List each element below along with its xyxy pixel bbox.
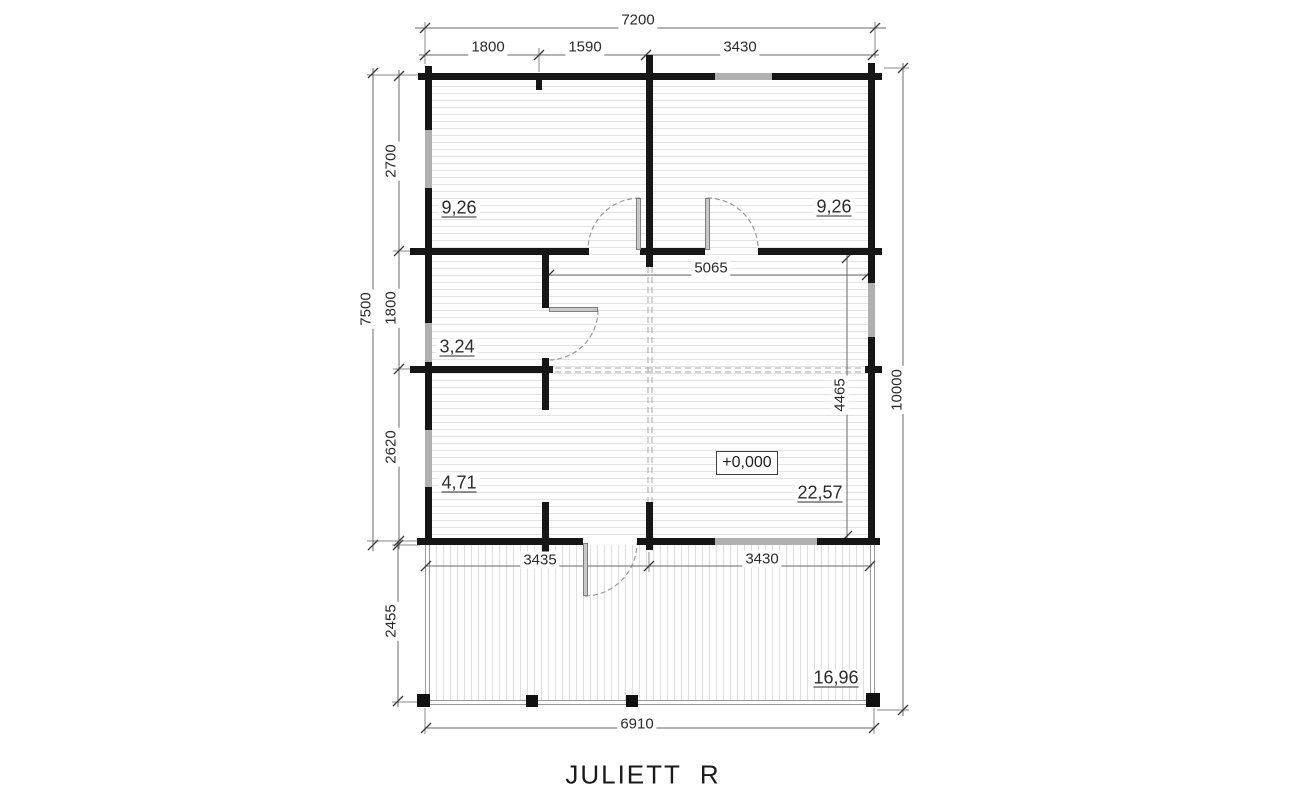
- window-marker: [425, 323, 432, 362]
- wall-segment: [410, 366, 553, 373]
- terrace-post: [626, 695, 638, 707]
- wall-segment: [646, 55, 653, 267]
- terrace-post: [866, 693, 880, 707]
- wall-segment: [758, 248, 882, 255]
- door-leaf: [705, 198, 710, 250]
- window-marker: [868, 283, 875, 337]
- extension-lines: [367, 22, 909, 734]
- drawing-title: JULIETT R: [565, 760, 720, 791]
- door-leaf: [549, 307, 598, 312]
- dimension-ticks: [368, 23, 908, 733]
- wall-segment: [865, 366, 882, 373]
- dim-terrace-overall: 6910: [617, 716, 656, 733]
- window-marker: [425, 130, 432, 188]
- elevation-marker: +0,000: [716, 451, 778, 475]
- wall-segment: [542, 358, 549, 410]
- room-area-storage: 4,71: [438, 475, 479, 492]
- floor-plan: 7200 1800 1590 3430 7500 2700 1800 2620 …: [0, 0, 1300, 800]
- room-area-living: 22,57: [794, 485, 845, 502]
- window-marker: [425, 430, 432, 487]
- wall-segment: [425, 487, 432, 545]
- dim-top-overall: 7200: [618, 12, 657, 29]
- terrace-post: [417, 694, 430, 707]
- door-swing-arcs: [548, 198, 758, 596]
- room-area-bedroom-left: 9,26: [438, 200, 479, 217]
- dim-terrace-a: 3435: [520, 552, 559, 569]
- dim-left-b: 1800: [383, 288, 400, 327]
- dim-left-a: 2700: [383, 141, 400, 180]
- room-area-bedroom-right: 9,26: [813, 199, 854, 216]
- dim-top-b: 1590: [565, 39, 604, 56]
- wall-segment: [817, 538, 880, 545]
- window-marker: [715, 73, 772, 80]
- dim-terrace-depth: 2455: [383, 601, 400, 640]
- wall-segment: [417, 538, 583, 545]
- wall-segment: [425, 188, 432, 323]
- room-area-bathroom: 3,24: [436, 339, 477, 356]
- dim-terrace-b: 3430: [742, 551, 781, 568]
- wall-segment: [772, 73, 882, 80]
- dim-top-c: 3430: [720, 39, 759, 56]
- elevation-value: +0,000: [722, 454, 771, 472]
- dim-living-depth: 4465: [832, 375, 849, 414]
- dim-left-overall: 7500: [358, 289, 375, 328]
- wall-segment: [418, 73, 715, 80]
- dim-hall-width: 5065: [691, 260, 730, 277]
- wall-segment: [410, 248, 589, 255]
- dim-left-c: 2620: [383, 427, 400, 466]
- door-leaf: [583, 543, 588, 596]
- dim-top-a: 1800: [468, 39, 507, 56]
- wall-segment: [542, 250, 549, 308]
- window-marker: [715, 538, 817, 545]
- room-area-terrace: 16,96: [810, 670, 861, 687]
- terrace-edge-lines: [425, 545, 875, 707]
- wall-segment: [646, 502, 653, 550]
- wall-segment: [425, 66, 432, 130]
- door-leaf: [636, 198, 641, 250]
- dimension-lines: [373, 28, 903, 728]
- hidden-lines: [555, 267, 865, 502]
- wall-segment: [536, 73, 542, 90]
- dim-right-overall: 10000: [889, 366, 906, 414]
- terrace-post: [526, 695, 538, 707]
